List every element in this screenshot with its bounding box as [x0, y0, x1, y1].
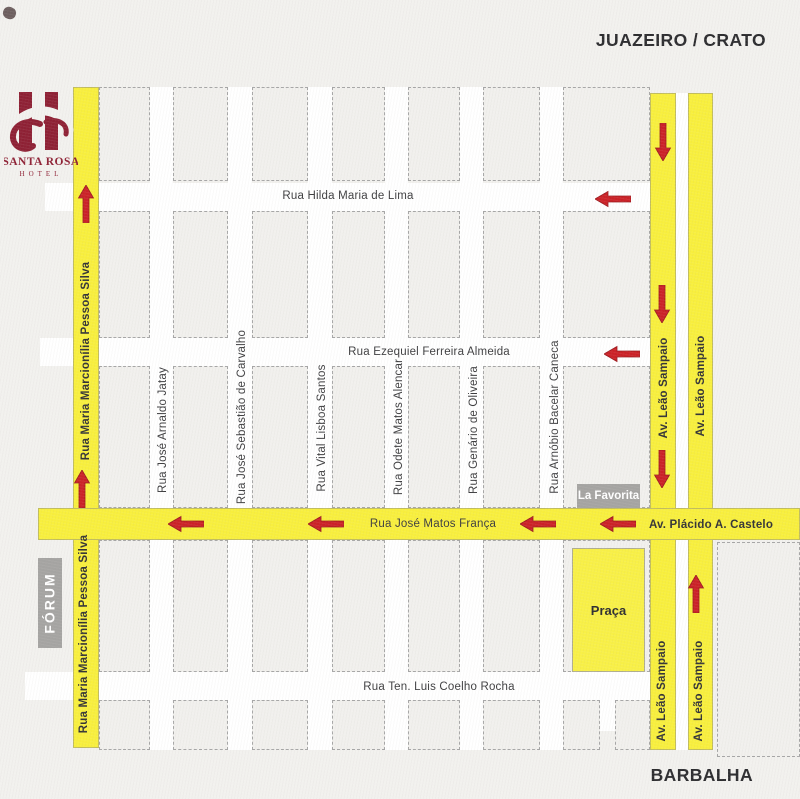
city-block	[717, 542, 800, 757]
arrow-left-icon	[595, 190, 631, 208]
arrow-down-icon	[654, 123, 672, 161]
city-block	[173, 87, 228, 181]
street-name-rua-odete-matos-alencar: Rua Odete Matos Alencar	[393, 359, 405, 495]
city-block	[332, 700, 385, 750]
street-name-rua-ten-luis-coelho-rocha: Rua Ten. Luis Coelho Rocha	[363, 681, 514, 693]
street-name-rua-jose-matos-franca: Rua José Matos França	[370, 518, 496, 530]
arrow-up-icon	[73, 470, 91, 508]
arrow-up-icon	[687, 575, 705, 613]
street-name-rua-ezequiel-ferreira-almeida: Rua Ezequiel Ferreira Almeida	[348, 346, 510, 358]
one-way-arrow-up	[73, 470, 91, 508]
city-block	[252, 700, 308, 750]
santa-rosa-hotel-logo: SANTA ROSA HOTEL	[4, 90, 78, 187]
street-name-rua-vital-lisboa-santos: Rua Vital Lisboa Santos	[316, 364, 328, 491]
street-name-rua-hilda-maria-de-lima: Rua Hilda Maria de Lima	[282, 190, 413, 202]
city-block	[483, 211, 540, 338]
one-way-arrow-down	[654, 123, 672, 161]
arrow-left-icon	[308, 515, 344, 533]
one-way-arrow-left	[168, 515, 204, 533]
city-block	[173, 700, 228, 750]
city-block	[173, 211, 228, 338]
arrow-up-icon	[77, 185, 95, 223]
street-name-rua-maria-marcionilia-pessoa-silva: Rua Maria Marcionília Pessoa Silva	[80, 262, 92, 461]
city-block	[483, 87, 540, 181]
arrow-left-icon	[520, 515, 556, 533]
city-block	[252, 87, 308, 181]
city-block	[332, 87, 385, 181]
landmark-label-forum: FÓRUM	[42, 572, 58, 633]
street-name-av-leao-sampaio: Av. Leão Sampaio	[658, 338, 670, 439]
landmark-label-praca: Praça	[591, 603, 626, 618]
city-block	[99, 87, 150, 181]
arrow-left-icon	[604, 345, 640, 363]
city-block	[483, 540, 540, 672]
one-way-arrow-down	[653, 285, 671, 323]
street-name-rua-genario-de-oliveira: Rua Genário de Oliveira	[468, 366, 480, 494]
one-way-arrow-left	[308, 515, 344, 533]
city-block	[99, 366, 150, 508]
logo-title: SANTA ROSA	[4, 156, 78, 168]
street-name-rua-jose-arnaldo-jatay: Rua José Arnaldo Jatay	[157, 367, 169, 493]
destination-label-barbalha: BARBALHA	[651, 765, 753, 786]
city-block	[408, 87, 460, 181]
one-way-arrow-left	[604, 345, 640, 363]
city-block	[252, 366, 308, 508]
city-block	[173, 540, 228, 672]
arrow-down-icon	[653, 285, 671, 323]
map-page: JUAZEIRO / CRATO BARBALHA SANTA ROSA HOT…	[0, 0, 800, 799]
landmark-forum: FÓRUM	[38, 558, 62, 648]
city-block	[252, 211, 308, 338]
landmark-praca: Praça	[572, 548, 645, 672]
city-block	[408, 540, 460, 672]
one-way-arrow-left	[600, 515, 636, 533]
landmark-la-favorita: La Favorita	[577, 484, 640, 508]
hotel-logo-mark	[6, 92, 69, 150]
landmark-label-la-favorita: La Favorita	[578, 490, 639, 502]
street-name-rua-jose-sebastiao-de-carvalho: Rua José Sebastião de Carvalho	[236, 330, 248, 504]
street-small-lane-stub	[600, 700, 615, 731]
map-canvas: FÓRUMLa FavoritaPraçaRua Hilda Maria de …	[0, 0, 800, 799]
hotel-logo-graphic: SANTA ROSA HOTEL	[4, 90, 78, 182]
arrow-down-icon	[653, 450, 671, 488]
one-way-arrow-up	[687, 575, 705, 613]
city-block	[99, 700, 150, 750]
city-block	[563, 700, 600, 750]
city-block	[173, 366, 228, 508]
city-block	[99, 211, 150, 338]
one-way-arrow-left	[595, 190, 631, 208]
street-name-av-leao-sampaio: Av. Leão Sampaio	[695, 336, 707, 437]
city-block	[408, 700, 460, 750]
city-block	[483, 700, 540, 750]
destination-label-juazeiro-crato: JUAZEIRO / CRATO	[596, 30, 766, 51]
arrow-left-icon	[168, 515, 204, 533]
street-name-av-leao-sampaio: Av. Leão Sampaio	[656, 641, 668, 742]
city-block	[332, 366, 385, 508]
city-block	[332, 211, 385, 338]
arrow-left-icon	[600, 515, 636, 533]
one-way-arrow-down	[653, 450, 671, 488]
street-name-av-placido-a-castelo: Av. Plácido A. Castelo	[649, 519, 773, 531]
logo-subtitle: HOTEL	[20, 170, 63, 178]
city-block	[563, 211, 650, 338]
city-block	[332, 540, 385, 672]
city-block	[615, 700, 650, 750]
street-name-rua-maria-marcionilia-pessoa-silva: Rua Maria Marcionília Pessoa Silva	[78, 535, 90, 734]
city-block	[408, 366, 460, 508]
city-block	[408, 211, 460, 338]
street-name-rua-arnobio-bacelar-caneca: Rua Arnóbio Bacelar Caneca	[549, 340, 561, 494]
city-block	[252, 540, 308, 672]
city-block	[563, 87, 650, 181]
city-block	[99, 540, 150, 672]
one-way-arrow-left	[520, 515, 556, 533]
one-way-arrow-up	[77, 185, 95, 223]
city-block	[483, 366, 540, 508]
street-name-av-leao-sampaio: Av. Leão Sampaio	[693, 641, 705, 742]
